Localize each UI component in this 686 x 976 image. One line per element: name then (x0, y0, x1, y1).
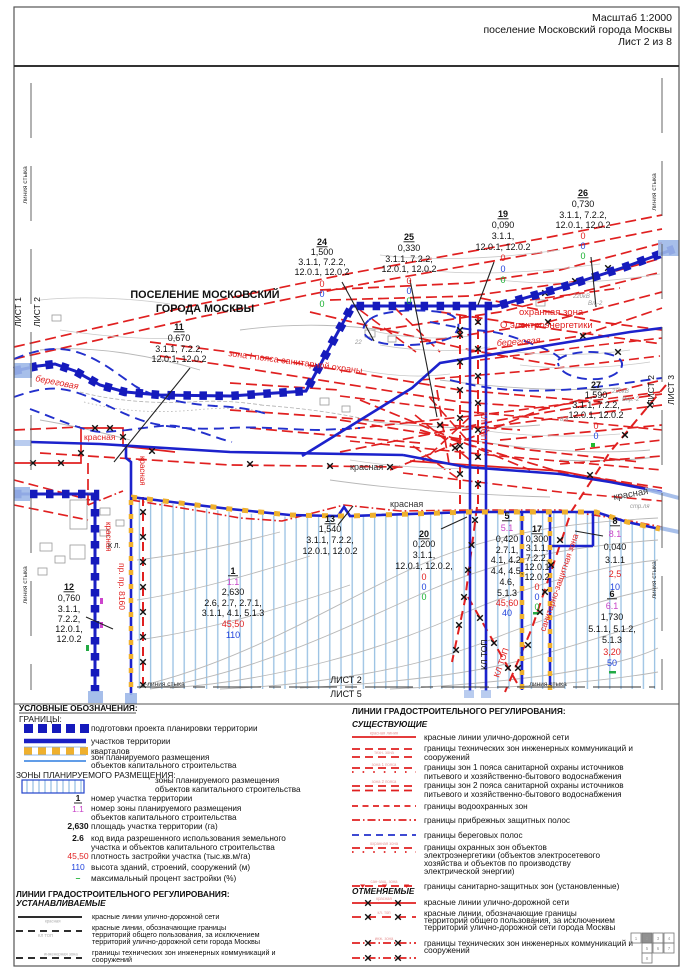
svg-text:2.6: 2.6 (72, 833, 84, 843)
svg-text:0: 0 (580, 231, 585, 241)
svg-text:8.1: 8.1 (609, 529, 622, 539)
svg-text:зоны планируемого размещения: зоны планируемого размещения (155, 776, 279, 785)
svg-text:3.1.1, 7.2.2,: 3.1.1, 7.2.2, (155, 344, 203, 354)
svg-text:КЛ ТОП: КЛ ТОП (38, 933, 53, 938)
svg-text:2,630: 2,630 (67, 821, 89, 831)
svg-text:12.0.1, 12.0.2: 12.0.1, 12.0.2 (151, 354, 206, 364)
svg-text:12.0.2: 12.0.2 (56, 634, 81, 644)
svg-text:номер зоны планируемого размещ: номер зоны планируемого размещения (91, 804, 241, 813)
svg-text:0: 0 (593, 431, 598, 441)
svg-text:5.1.3: 5.1.3 (497, 588, 517, 598)
svg-text:3.1.1,: 3.1.1, (58, 604, 81, 614)
svg-text:220кВ: 220кВ (572, 294, 590, 300)
svg-text:8: 8 (612, 516, 617, 526)
svg-text:0: 0 (406, 296, 411, 306)
svg-text:код вида разрешенного использо: код вида разрешенного использования земе… (91, 834, 286, 843)
svg-text:110: 110 (71, 862, 85, 872)
svg-text:12: 12 (64, 582, 74, 592)
svg-text:0,760: 0,760 (58, 593, 81, 603)
svg-text:0,670: 0,670 (168, 333, 191, 343)
svg-text:0: 0 (500, 264, 505, 274)
svg-text:0,730: 0,730 (572, 199, 595, 209)
svg-text:сооружений: сооружений (92, 955, 132, 964)
svg-text:ЛИСТ 2: ЛИСТ 2 (330, 675, 362, 685)
svg-text:11: 11 (174, 322, 184, 332)
svg-text:12.0.1, 12.0.2: 12.0.1, 12.0.2 (568, 410, 623, 420)
svg-text:0: 0 (319, 299, 324, 309)
svg-text:сооружений: сооружений (424, 753, 470, 762)
svg-text:3.1.1, 7.2.2,: 3.1.1, 7.2.2, (572, 400, 620, 410)
svg-text:красные линии улично-дорожной: красные линии улично-дорожной сети (424, 733, 569, 742)
svg-text:линия стыка: линия стыка (22, 566, 29, 604)
svg-text:6: 6 (609, 589, 614, 599)
svg-text:0: 0 (593, 421, 598, 431)
svg-text:12.0.1: 12.0.1 (524, 562, 549, 572)
svg-text:ЛИСТ 2: ЛИСТ 2 (646, 375, 656, 405)
svg-text:максимальный процент застройки: максимальный процент застройки (%) (91, 874, 237, 883)
svg-text:ЛИСТ 5: ЛИСТ 5 (330, 689, 362, 699)
svg-text:12.0.1,: 12.0.1, (55, 624, 83, 634)
svg-text:0: 0 (406, 276, 411, 286)
svg-text:красная: красная (390, 499, 423, 509)
svg-text:0: 0 (534, 582, 539, 592)
svg-text:ЛИНИИ ГРАДОСТРОИТЕЛЬНОГО РЕГУЛ: ЛИНИИ ГРАДОСТРОИТЕЛЬНОГО РЕГУЛИРОВАНИЯ: (352, 706, 566, 716)
svg-text:1: 1 (230, 566, 235, 576)
svg-text:3.1.1,: 3.1.1, (526, 543, 549, 553)
svg-text:220кВ: 220кВ (611, 389, 629, 395)
svg-text:1,540: 1,540 (319, 524, 342, 534)
svg-text:номер участка территории: номер участка территории (91, 794, 192, 803)
svg-text:линия стыка: линия стыка (147, 681, 185, 688)
svg-text:27: 27 (591, 380, 601, 390)
svg-text:4.6,: 4.6, (499, 577, 514, 587)
svg-text:КЛ ТОП: КЛ ТОП (479, 640, 489, 670)
svg-text:границы прибрежных защитных по: границы прибрежных защитных полос (424, 816, 570, 825)
svg-text:питьевого и хозяйственно-бытов: питьевого и хозяйственно-бытового водосн… (424, 772, 622, 781)
svg-text:4.1, 4.2,: 4.1, 4.2, (491, 555, 524, 565)
svg-text:2.6, 2.7, 2.7.1,: 2.6, 2.7, 2.7.1, (204, 598, 262, 608)
svg-text:26: 26 (578, 188, 588, 198)
svg-text:45;60: 45;60 (496, 598, 519, 608)
svg-text:высота зданий, строений, соору: высота зданий, строений, сооружений (м) (91, 863, 250, 872)
svg-text:0: 0 (319, 279, 324, 289)
svg-text:22: 22 (354, 340, 362, 346)
svg-text:6.1: 6.1 (606, 601, 619, 611)
svg-text:линия стыка: линия стыка (529, 681, 567, 688)
svg-text:подготовки проекта планировки: подготовки проекта планировки территории (91, 724, 258, 733)
svg-text:линия стыка: линия стыка (651, 561, 658, 599)
svg-text:ЛИСТ 1: ЛИСТ 1 (13, 297, 23, 327)
svg-text:–: – (76, 873, 81, 883)
svg-text:линия стыка: линия стыка (22, 166, 29, 204)
svg-text:электрической энергии): электрической энергии) (424, 867, 515, 876)
svg-text:ЛИСТ 3: ЛИСТ 3 (666, 375, 676, 405)
svg-text:1: 1 (76, 793, 81, 803)
svg-text:красная: красная (376, 896, 392, 901)
svg-text:3.1.1: 3.1.1 (605, 555, 625, 565)
svg-text:1,590: 1,590 (585, 390, 608, 400)
svg-text:2,5: 2,5 (609, 569, 622, 579)
svg-text:3.1.1, 4.1, 5.1.3: 3.1.1, 4.1, 5.1.3 (202, 608, 265, 618)
svg-text:0: 0 (421, 572, 426, 582)
svg-text:1.1: 1.1 (72, 804, 84, 814)
svg-text:участков территории: участков территории (91, 737, 170, 746)
svg-text:инж. зона: инж. зона (375, 936, 394, 941)
svg-text:5.1.3: 5.1.3 (602, 635, 622, 645)
svg-text:7.2.2,: 7.2.2, (58, 614, 81, 624)
svg-text:0,420: 0,420 (496, 534, 519, 544)
svg-text:2.7.1,: 2.7.1, (496, 545, 519, 555)
svg-text:2,630: 2,630 (222, 587, 245, 597)
svg-text:19: 19 (498, 209, 508, 219)
svg-text:границы водоохранных зон: границы водоохранных зон (424, 802, 528, 811)
svg-text:5.1: 5.1 (501, 523, 514, 533)
svg-text:0: 0 (500, 253, 505, 263)
svg-text:0,200: 0,200 (413, 539, 436, 549)
svg-text:Вл.-2: Вл.-2 (588, 301, 603, 307)
svg-text:3.1.1, 7.2.2,: 3.1.1, 7.2.2, (559, 210, 607, 220)
svg-text:25: 25 (404, 232, 414, 242)
svg-text:красная линия: красная линия (370, 731, 398, 736)
svg-text:0: 0 (534, 592, 539, 602)
svg-text:питьевого и хозяйственно-бытов: питьевого и хозяйственно-бытового водосн… (424, 790, 622, 799)
svg-text:сан-защ. зона: сан-защ. зона (371, 879, 399, 884)
svg-text:ОТМЕНЯЕМЫЕ: ОТМЕНЯЕМЫЕ (352, 886, 415, 896)
svg-text:СУЩЕСТВУЮЩИЕ: СУЩЕСТВУЮЩИЕ (352, 719, 428, 729)
svg-text:0: 0 (421, 592, 426, 602)
svg-text:пр. пр. 8160: пр. пр. 8160 (117, 563, 127, 610)
svg-text:границы санитарно-защитных зон: границы санитарно-защитных зон (установл… (424, 882, 620, 891)
svg-text:зона 1 пояса: зона 1 пояса (372, 762, 397, 767)
svg-text:ГРАНИЦЫ:: ГРАНИЦЫ: (19, 714, 62, 724)
svg-text:3.1.1,: 3.1.1, (413, 550, 436, 560)
svg-text:красная: красная (350, 462, 383, 472)
svg-text:охранная зона: охранная зона (519, 307, 584, 318)
svg-text:красная: красная (84, 432, 116, 442)
svg-text:красная: красная (138, 456, 147, 486)
svg-text:40: 40 (502, 608, 512, 618)
svg-text:участка и объектов капитальног: участка и объектов капитального строител… (91, 843, 275, 852)
svg-text:12.0.1, 12.0.2,: 12.0.1, 12.0.2, (395, 561, 453, 571)
svg-text:45,50: 45,50 (67, 851, 89, 861)
svg-text:0: 0 (534, 602, 539, 612)
svg-text:ГОРОДА МОСКВЫ: ГОРОДА МОСКВЫ (156, 303, 254, 315)
svg-text:объектов капитального строител: объектов капитального строительства (91, 813, 237, 822)
svg-text:Лист 2 из 8: Лист 2 из 8 (618, 36, 672, 48)
svg-text:13: 13 (325, 514, 335, 524)
svg-text:охранная зона: охранная зона (370, 841, 399, 846)
svg-text:инженерная зона: инженерная зона (44, 952, 78, 957)
svg-text:12.0.1, 12.0.2: 12.0.1, 12.0.2 (294, 267, 349, 277)
svg-text:кл. топ: кл. топ (377, 910, 390, 915)
svg-text:ЗОНЫ ПЛАНИРУЕМОГО РАЗМЕЩЕНИЯ:: ЗОНЫ ПЛАНИРУЕМОГО РАЗМЕЩЕНИЯ: (16, 770, 176, 780)
svg-text:К Л.: К Л. (108, 543, 121, 550)
svg-text:0: 0 (580, 251, 585, 261)
svg-text:КЛ ТОП: КЛ ТОП (479, 412, 488, 441)
svg-text:0,040: 0,040 (604, 542, 627, 552)
svg-text:1,730: 1,730 (601, 612, 624, 622)
svg-text:УСТАНАВЛИВАЕМЫЕ: УСТАНАВЛИВАЕМЫЕ (16, 898, 106, 908)
svg-text:0: 0 (406, 286, 411, 296)
svg-text:красные линии улично-дорожной: красные линии улично-дорожной сети (424, 898, 569, 907)
svg-text:12.0.1, 12.0.2: 12.0.1, 12.0.2 (302, 546, 357, 556)
svg-text:красные линии улично-дорожной: красные линии улично-дорожной сети (92, 912, 219, 921)
svg-text:3.1.1,: 3.1.1, (492, 231, 515, 241)
svg-text:стр.ля: стр.ля (630, 504, 650, 510)
svg-text:Масштаб 1:2000: Масштаб 1:2000 (592, 12, 672, 24)
svg-text:20: 20 (419, 529, 429, 539)
svg-text:плотность застройки участка (т: плотность застройки участка (тыс.кв.м/га… (91, 852, 251, 861)
svg-text:УСЛОВНЫЕ ОБОЗНАЧЕНИЯ:: УСЛОВНЫЕ ОБОЗНАЧЕНИЯ: (19, 703, 138, 713)
svg-text:зона 2 пояса: зона 2 пояса (372, 779, 397, 784)
svg-text:границы береговых полос: границы береговых полос (424, 831, 523, 840)
svg-text:ЛИСТ 2: ЛИСТ 2 (32, 297, 42, 327)
svg-text:территорий улично-дорожной сет: территорий улично-дорожной сети города М… (92, 937, 260, 946)
svg-text:объектов капитального строител: объектов капитального строительства (91, 761, 237, 770)
svg-text:110: 110 (226, 630, 240, 640)
svg-text:3,20: 3,20 (603, 647, 621, 657)
svg-text:линия стыка: линия стыка (651, 173, 658, 211)
svg-text:5: 5 (504, 511, 509, 521)
svg-text:объектов капитального строител: объектов капитального строительства (155, 785, 301, 794)
svg-text:5.1.1, 5.1.2,: 5.1.1, 5.1.2, (588, 624, 636, 634)
svg-text:территорий улично-дорожной сет: территорий улично-дорожной сети города М… (424, 923, 616, 932)
svg-text:24: 24 (317, 237, 327, 247)
svg-text:границы зон 2 пояса санитарной: границы зон 2 пояса санитарной охраны ис… (424, 781, 624, 790)
svg-text:красная: красная (45, 919, 61, 924)
svg-text:0,330: 0,330 (398, 243, 421, 253)
svg-text:площадь участка территории (га: площадь участка территории (га) (91, 822, 218, 831)
svg-text:3.1.1, 7.2.2,: 3.1.1, 7.2.2, (306, 535, 354, 545)
svg-text:0: 0 (421, 582, 426, 592)
svg-text:техн. зона: техн. зона (374, 750, 394, 755)
svg-text:4.4, 4.5,: 4.4, 4.5, (491, 566, 524, 576)
svg-text:Вкр.-2: Вкр.-2 (622, 397, 640, 403)
svg-text:17: 17 (532, 524, 542, 534)
svg-text:0: 0 (580, 241, 585, 251)
svg-text:0,090: 0,090 (492, 220, 515, 230)
svg-text:границы технических зон инжене: границы технических зон инженерных комму… (424, 744, 633, 753)
svg-text:О электроэнергетики: О электроэнергетики (500, 320, 593, 331)
svg-text:поселение Московский города Мо: поселение Московский города Москвы (483, 24, 672, 36)
svg-text:3.1.1, 7.2.2,: 3.1.1, 7.2.2, (298, 257, 346, 267)
svg-text:12.0.1, 12.0.2: 12.0.1, 12.0.2 (475, 242, 530, 252)
svg-text:границы зон 1 пояса санитарной: границы зон 1 пояса санитарной охраны ис… (424, 763, 624, 772)
svg-text:0: 0 (500, 275, 505, 285)
svg-text:сооружений: сооружений (424, 946, 470, 955)
svg-text:45;50: 45;50 (222, 619, 245, 629)
svg-text:12.0.2: 12.0.2 (524, 572, 549, 582)
svg-text:8,8: 8,8 (560, 417, 569, 423)
svg-text:1.1: 1.1 (227, 577, 240, 587)
svg-text:3.1.1, 7.2.2,: 3.1.1, 7.2.2, (385, 254, 433, 264)
svg-text:12.0.1, 12.0.2: 12.0.1, 12.0.2 (381, 264, 436, 274)
svg-text:50: 50 (607, 658, 617, 668)
svg-text:1,500: 1,500 (311, 247, 334, 257)
svg-text:12.0.1, 12.0.2: 12.0.1, 12.0.2 (555, 220, 610, 230)
svg-text:ПОСЕЛЕНИЕ МОСКОВСКИЙ: ПОСЕЛЕНИЕ МОСКОВСКИЙ (130, 288, 279, 301)
svg-text:0: 0 (319, 289, 324, 299)
